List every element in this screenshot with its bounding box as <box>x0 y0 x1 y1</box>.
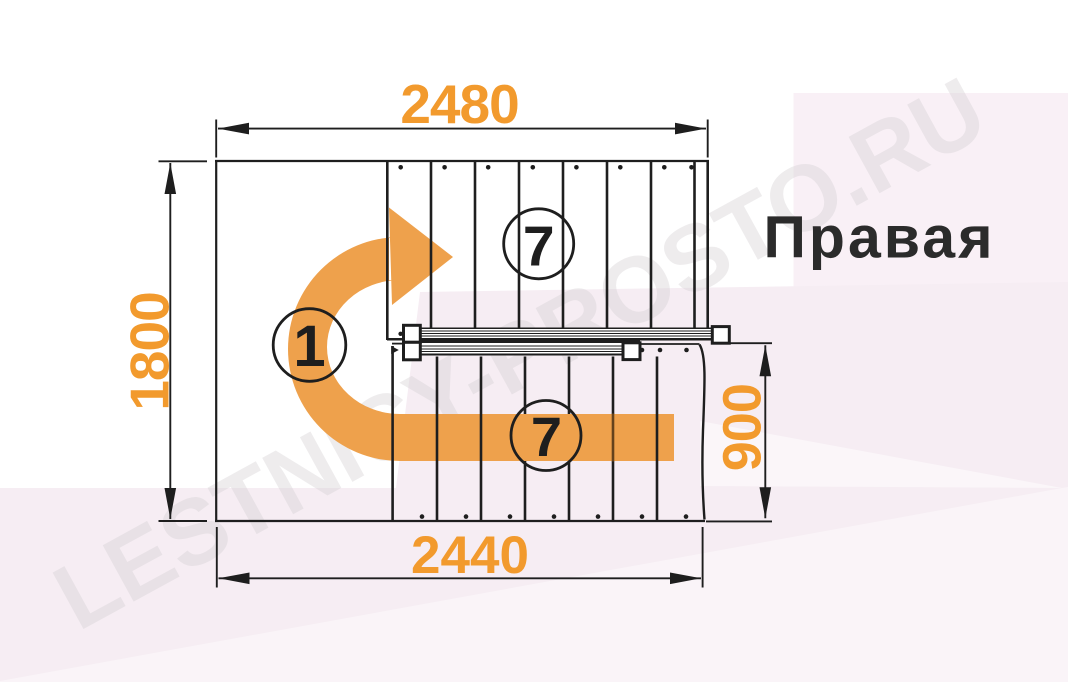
svg-text:2480: 2480 <box>400 73 518 135</box>
svg-text:1: 1 <box>293 314 325 379</box>
svg-text:7: 7 <box>523 215 555 279</box>
svg-text:2440: 2440 <box>411 526 529 585</box>
svg-text:7: 7 <box>531 405 562 468</box>
svg-text:900: 900 <box>712 384 772 471</box>
svg-text:Правая: Правая <box>764 205 996 271</box>
svg-text:1800: 1800 <box>119 292 181 410</box>
